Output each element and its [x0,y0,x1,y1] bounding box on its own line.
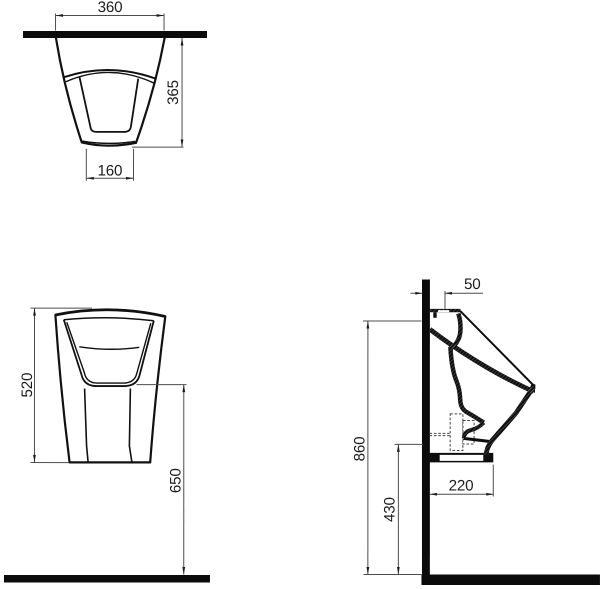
svg-text:365: 365 [165,80,182,105]
svg-text:520: 520 [19,373,36,398]
svg-text:430: 430 [381,497,398,522]
svg-text:220: 220 [449,477,474,494]
svg-text:50: 50 [464,276,481,293]
svg-text:160: 160 [98,162,123,179]
svg-text:860: 860 [351,437,368,462]
svg-text:360: 360 [98,0,123,16]
svg-text:650: 650 [168,468,185,493]
